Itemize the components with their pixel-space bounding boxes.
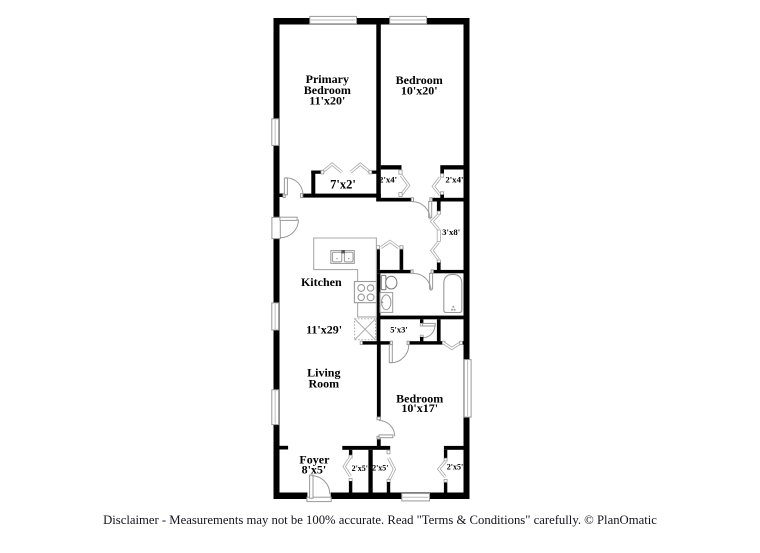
svg-text:3'x8': 3'x8' bbox=[442, 227, 460, 237]
svg-text:8'x5': 8'x5' bbox=[302, 463, 327, 477]
svg-text:10'x20': 10'x20' bbox=[401, 84, 438, 98]
svg-text:2'x4': 2'x4' bbox=[445, 174, 463, 184]
svg-text:11'x29': 11'x29' bbox=[306, 322, 342, 336]
svg-text:11'x20': 11'x20' bbox=[309, 93, 345, 107]
svg-text:2'x5': 2'x5' bbox=[372, 464, 388, 473]
svg-text:7'x2': 7'x2' bbox=[330, 177, 356, 191]
svg-text:Kitchen: Kitchen bbox=[301, 275, 342, 289]
svg-text:Room: Room bbox=[308, 376, 339, 390]
svg-text:2'x4': 2'x4' bbox=[379, 174, 397, 184]
svg-text:10'x17': 10'x17' bbox=[401, 401, 438, 415]
svg-text:2'x5': 2'x5' bbox=[447, 463, 463, 472]
svg-text:5'x3': 5'x3' bbox=[390, 324, 407, 334]
svg-text:2'x5': 2'x5' bbox=[352, 464, 368, 473]
svg-text:Disclaimer - Measurements may: Disclaimer - Measurements may not be 100… bbox=[103, 513, 657, 527]
